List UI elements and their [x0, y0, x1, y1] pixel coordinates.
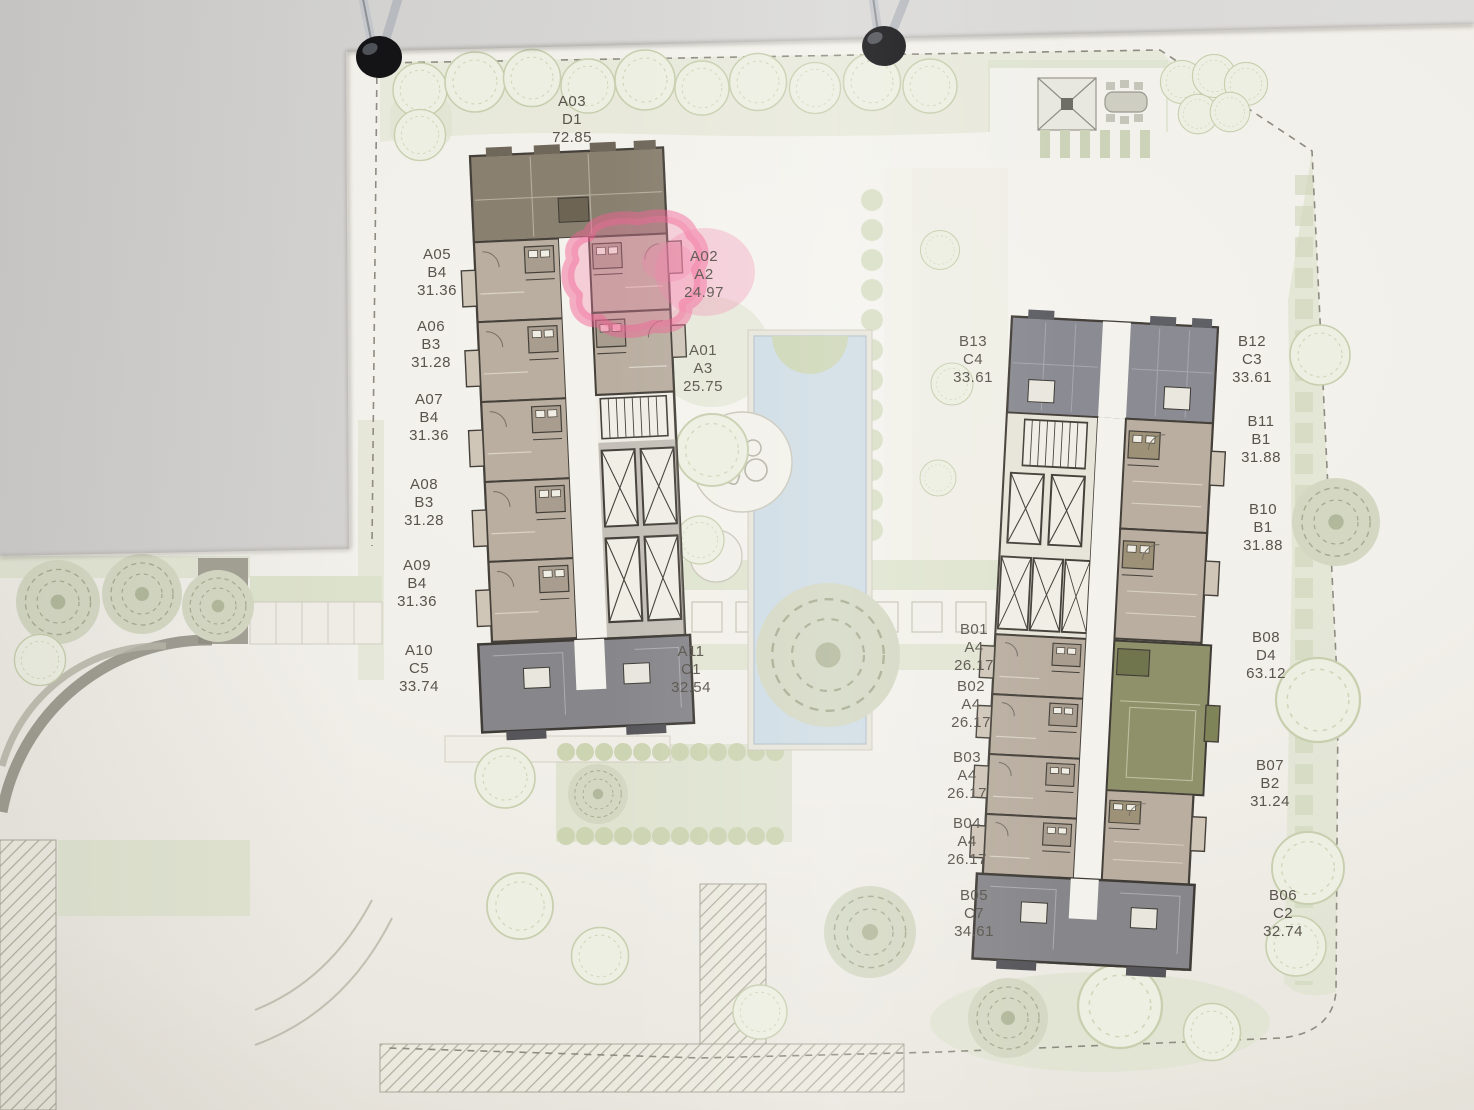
amenity-deck: [990, 68, 1166, 160]
binder-clip-left: [356, 0, 402, 78]
binder-clip-right: [862, 0, 908, 66]
unit-b03: [986, 754, 1080, 819]
unit-b10: [1114, 529, 1207, 643]
large-pool-tree: [756, 583, 900, 727]
unit-b01: [992, 634, 1086, 699]
unit-b11: [1120, 419, 1213, 533]
unit-a05: [474, 238, 563, 322]
unit-b07: [1102, 790, 1194, 885]
stairs-a: [600, 396, 668, 439]
stairs-b: [1022, 419, 1087, 468]
unit-a06: [478, 318, 567, 402]
highlight-marker-bridge: [642, 242, 694, 282]
unit-a09: [489, 558, 578, 642]
site-plan-drawing: [0, 0, 1474, 1110]
unit-b04: [983, 814, 1077, 879]
photo-of-site-plan: { "scene": { "binder_clip_count": 2 }, "…: [0, 0, 1474, 1110]
outdoor-table: [1105, 92, 1147, 112]
unit-b02: [989, 694, 1083, 759]
unit-a07: [481, 398, 570, 482]
unit-a08: [485, 478, 574, 562]
